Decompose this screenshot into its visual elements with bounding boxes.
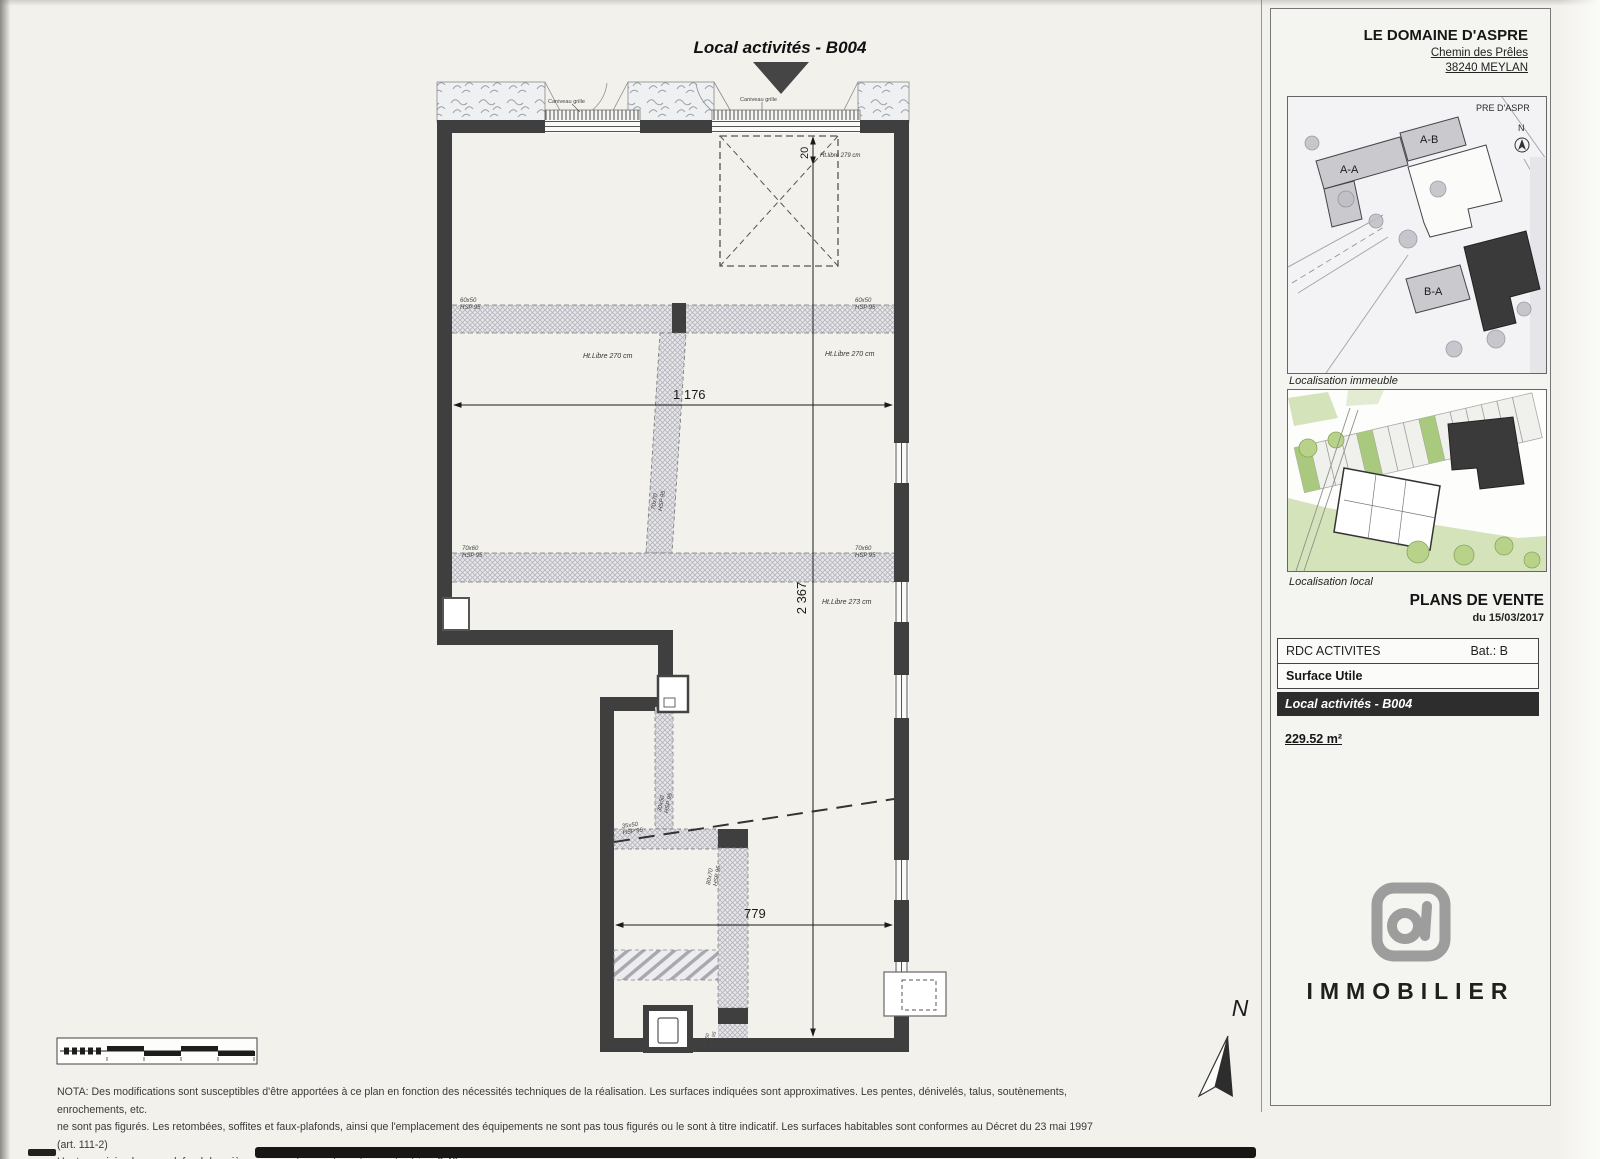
scan-edge-bright-right (1558, 0, 1600, 1159)
map-localisation-local (1287, 389, 1547, 572)
height-label-left: Ht.Libre 270 cm (583, 353, 633, 360)
beam-band-lower (452, 553, 894, 582)
scale-bar (57, 1038, 257, 1064)
pi-logo-icon (1368, 879, 1454, 965)
scanned-plan-page: Local activités - B004 Caniveau grille C… (0, 0, 1600, 1159)
map-localisation-immeuble: A-A A-B B-A PRE D'ASPR N (1287, 96, 1547, 374)
project-address-street: Chemin des Prêles (1271, 47, 1528, 59)
project-address-city: 38240 MEYLAN (1271, 62, 1528, 74)
caniveau-grille-label: Caniveau grille (740, 97, 777, 103)
table-row-surface-label: Surface Utile (1277, 664, 1539, 689)
lot-table: RDC ACTIVITES Bat.: B Surface Utile Loca… (1277, 638, 1539, 746)
area-label: PRE D'ASPR (1476, 103, 1530, 113)
agency-logo-block: IMMOBILIER (1271, 879, 1550, 1005)
map-north-label: N (1518, 123, 1525, 133)
map-caption-local: Localisation local (1289, 576, 1373, 588)
walls (437, 120, 909, 1052)
middle-column (646, 333, 686, 582)
sidebar-border-line (1261, 0, 1262, 1112)
svg-text:1 176: 1 176 (673, 387, 706, 402)
sidebar-header: LE DOMAINE D'ASPRE Chemin des Prêles 382… (1271, 27, 1528, 74)
floor-plan: Local activités - B004 Caniveau grille C… (0, 0, 1260, 1159)
svg-text:20: 20 (799, 147, 811, 159)
beam-label: 70x60 HSP 95 (855, 546, 876, 559)
building-label-aa: A-A (1340, 164, 1359, 176)
svg-text:779: 779 (744, 906, 766, 921)
scan-bottom-mark (28, 1149, 56, 1156)
level-label: RDC ACTIVITES (1286, 644, 1380, 658)
lower-columns (614, 707, 748, 1038)
fixtures (443, 598, 946, 1050)
svg-text:2 367: 2 367 (794, 582, 809, 615)
caniveau-grille-label: Caniveau grille (548, 99, 585, 105)
local-map (1288, 390, 1546, 571)
beam-label: 60x50 HSP 95 (460, 298, 481, 311)
height-label-right: Ht.Libre 270 cm (825, 351, 875, 358)
dim-width-bottom: 779 (616, 906, 892, 925)
scan-edge-shadow-top (0, 0, 1600, 6)
table-row-level: RDC ACTIVITES Bat.: B (1277, 638, 1539, 664)
building-label-ab: A-B (1420, 134, 1438, 146)
sidebar: LE DOMAINE D'ASPRE Chemin des Prêles 382… (1270, 8, 1551, 1106)
scan-bottom-band (255, 1147, 1256, 1158)
scan-edge-shadow-left (0, 0, 14, 1159)
plans-de-vente-block: PLANS DE VENTE du 15/03/2017 (1410, 592, 1544, 624)
building-label: Bat.: B (1470, 644, 1508, 658)
plans-date: du 15/03/2017 (1410, 612, 1544, 624)
nota-line-1: NOTA: Des modifications sont susceptible… (57, 1084, 1103, 1119)
entrance-pointer-icon (753, 62, 809, 94)
plan-title: Local activités - B004 (694, 38, 867, 57)
beam-label: 70x60 HSP 95 (462, 546, 483, 559)
site-map: A-A A-B B-A PRE D'ASPR N (1288, 97, 1546, 373)
dim-entry-gap: 20 (799, 137, 813, 164)
beam-label: 60x50 HSP 95 (855, 298, 876, 311)
agency-name: IMMOBILIER (1271, 978, 1550, 1005)
map-caption-immeuble: Localisation immeuble (1289, 375, 1398, 387)
surface-value: 229.52 m² (1277, 732, 1539, 746)
building-label-ba: B-A (1424, 286, 1443, 298)
height-label-lower: Ht.Libre 273 cm (822, 599, 872, 606)
height-label-box: Ht.libre 279 cm (820, 153, 860, 159)
north-arrow: N (1199, 995, 1249, 1097)
beam-band-upper (452, 303, 894, 335)
dim-height-main: 2 367 (794, 164, 813, 1036)
svg-text:N: N (1232, 995, 1249, 1021)
table-row-lot: Local activités - B004 (1277, 692, 1539, 716)
plans-title: PLANS DE VENTE (1410, 592, 1544, 610)
project-title: LE DOMAINE D'ASPRE (1271, 27, 1528, 44)
